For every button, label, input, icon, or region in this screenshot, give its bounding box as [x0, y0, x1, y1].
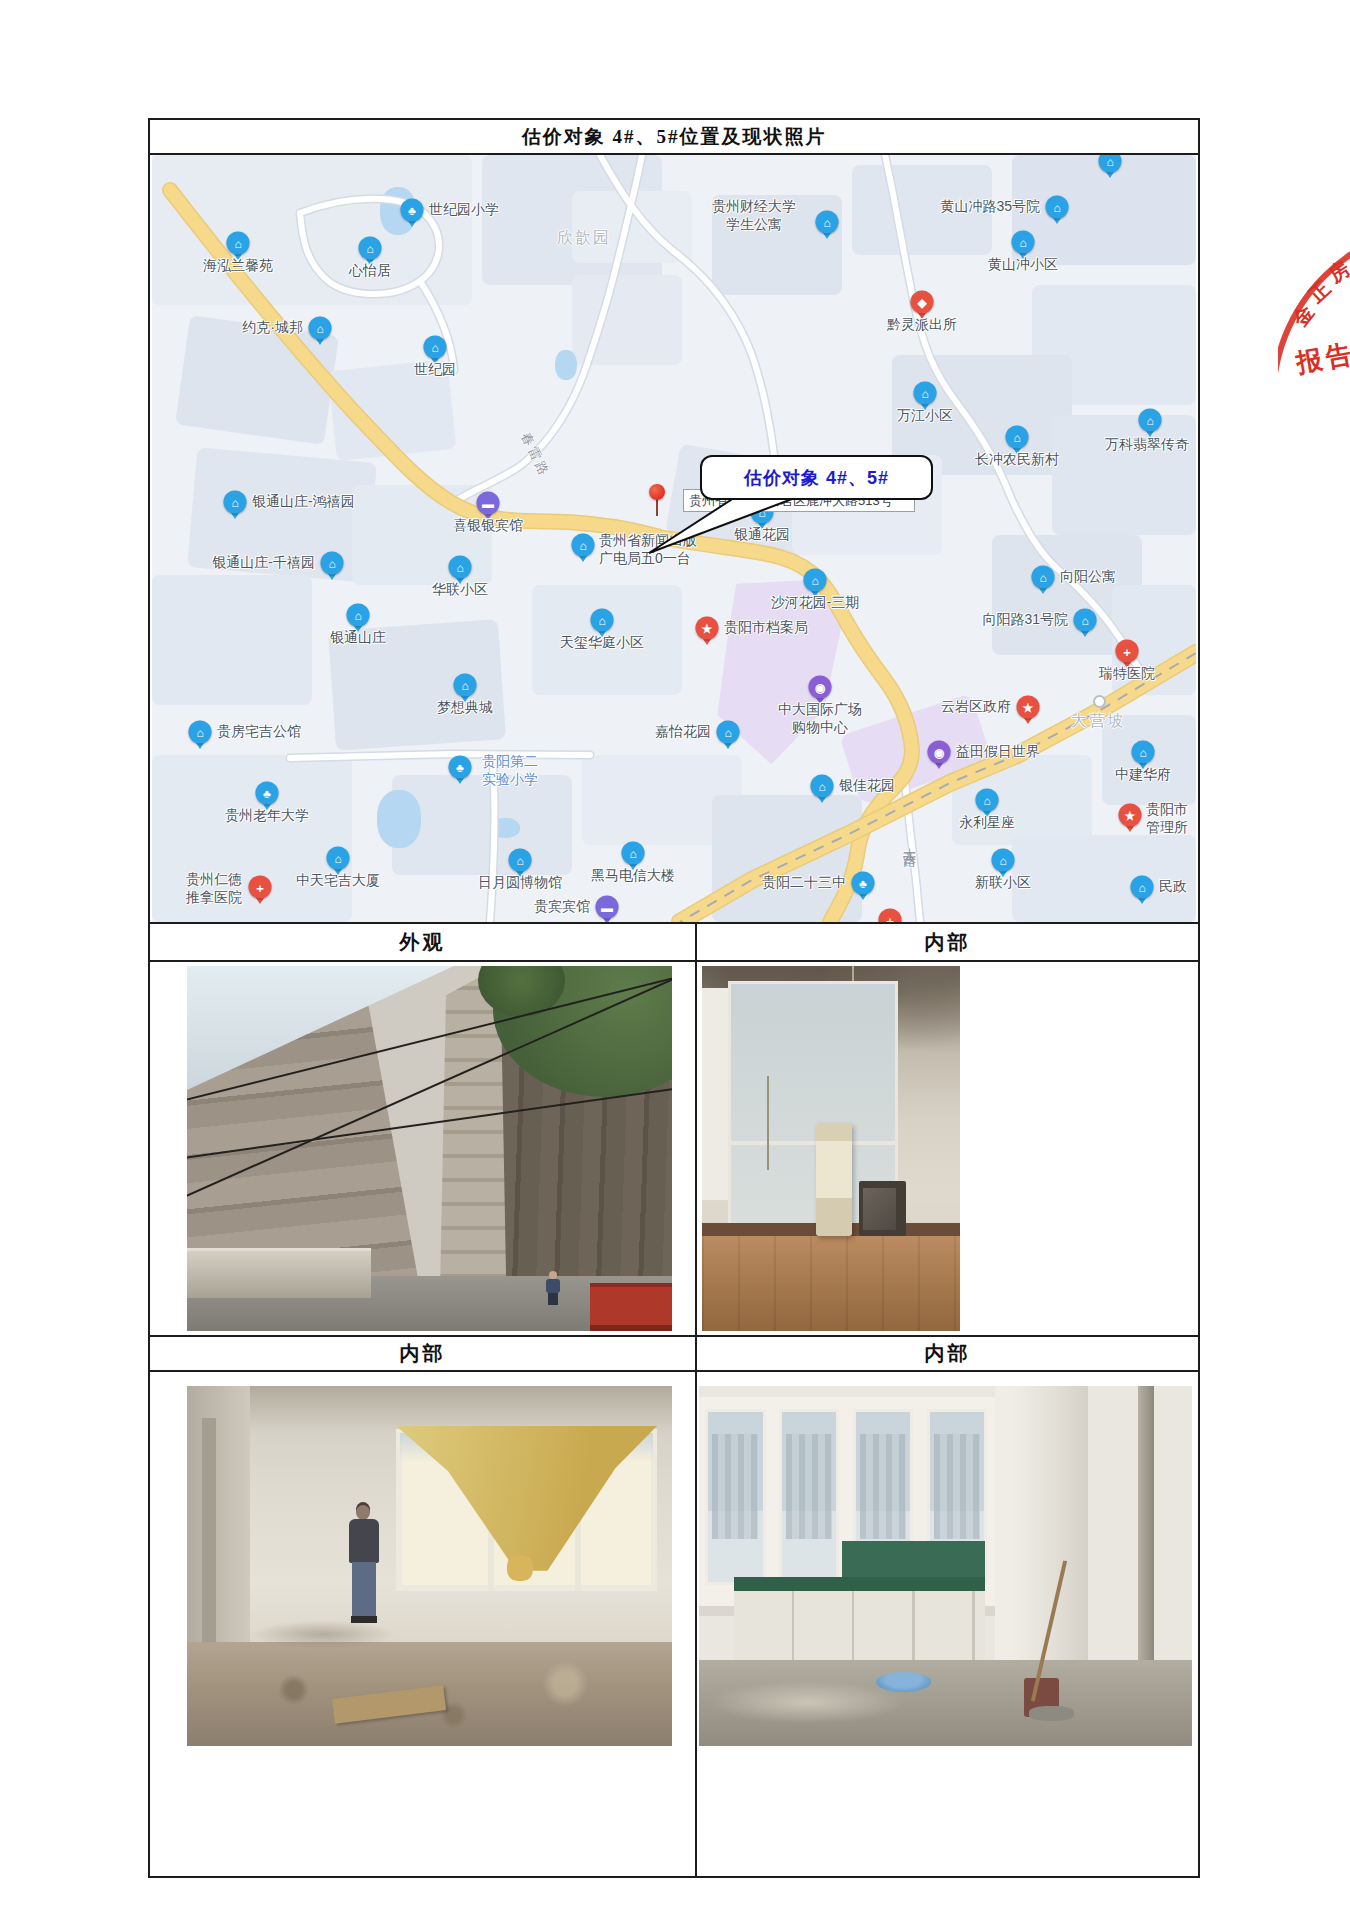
- wood-floor: [702, 1236, 960, 1331]
- photo-row-1: [150, 962, 1198, 1335]
- photo-header-row-1: 外观 内部: [150, 922, 1198, 962]
- red-cart: [590, 1283, 672, 1331]
- old-television: [859, 1181, 905, 1236]
- floor-light-patch: [709, 1681, 906, 1724]
- photo-table: 估价对象 4#、5#位置及现状照片: [148, 118, 1200, 1878]
- curtain-knot: [507, 1555, 533, 1581]
- red-stamp: 金 正 房 报告: [1278, 230, 1350, 400]
- svg-text:正: 正: [1304, 277, 1334, 307]
- wall-pipe: [1138, 1386, 1154, 1674]
- section-label-interior-3: 内部: [697, 1337, 1198, 1370]
- blue-basin: [876, 1672, 930, 1692]
- photo-cell-interior-2: [150, 1372, 697, 1876]
- hanging-cord: [767, 1076, 769, 1171]
- stamp-banner-text: 报告: [1292, 338, 1350, 378]
- photo-cell-interior-3: [697, 1372, 1198, 1876]
- person-figure: [347, 1505, 381, 1630]
- photo-header-row-2: 内部 内部: [150, 1335, 1198, 1372]
- low-wall: [187, 1248, 371, 1298]
- section-label-interior-1: 内部: [697, 924, 1198, 960]
- photo-exterior: [187, 966, 672, 1331]
- photo-interior-1: [702, 966, 960, 1331]
- water-dispenser: [816, 1123, 852, 1236]
- pedestrian-figure: [546, 1271, 560, 1305]
- window-crossbar: [728, 1141, 898, 1145]
- photo-interior-2: [187, 1386, 672, 1746]
- green-backsplash: [842, 1541, 985, 1581]
- photo-interior-3: [699, 1386, 1192, 1746]
- photo-row-2: [150, 1372, 1198, 1876]
- photo-cell-interior-1: [697, 962, 1198, 1335]
- location-map: ♣世纪园小学⌂海泓兰馨苑⌂心怡居⌂约克·城邦⌂世纪园贵州财经大学 学生公寓⌂⌂黄…: [152, 155, 1196, 922]
- kitchen-counter: [734, 1577, 985, 1671]
- callout-tail: [152, 155, 1196, 922]
- svg-text:房: 房: [1324, 257, 1350, 287]
- wall-smudge: [250, 1620, 396, 1649]
- report-page: 估价对象 4#、5#位置及现状照片: [0, 0, 1350, 1909]
- door-frame: [202, 1418, 217, 1656]
- section-label-exterior: 外观: [150, 924, 697, 960]
- window-pane: [705, 1409, 766, 1584]
- subject-callout: 估价对象 4#、5#: [700, 455, 933, 500]
- page-title: 估价对象 4#、5#位置及现状照片: [150, 120, 1198, 155]
- photo-cell-exterior: [150, 962, 697, 1335]
- section-label-interior-2: 内部: [150, 1337, 697, 1370]
- window-pane: [779, 1409, 840, 1584]
- mop-head: [1029, 1706, 1073, 1720]
